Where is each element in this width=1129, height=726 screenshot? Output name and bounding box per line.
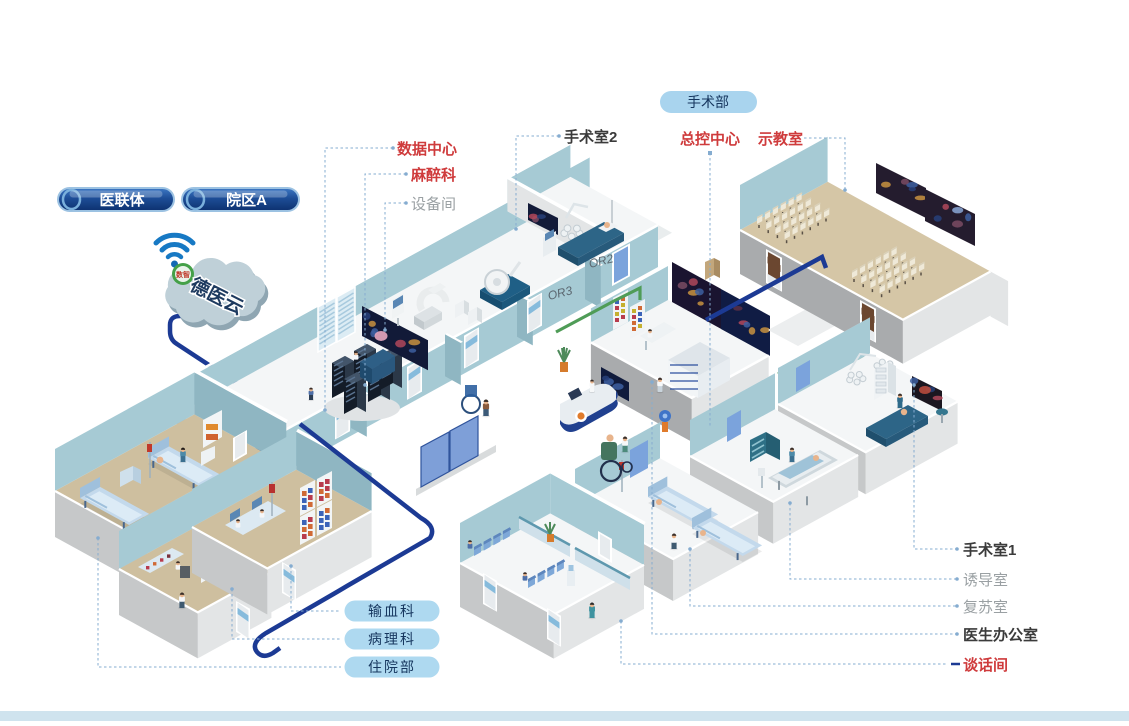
svg-text:住院部: 住院部 [368,659,416,675]
svg-text:设备间: 设备间 [411,196,456,213]
svg-text:病理科: 病理科 [368,631,416,647]
svg-text:手术室2: 手术室2 [564,128,617,146]
svg-text:诱导室: 诱导室 [963,572,1008,589]
svg-text:院区A: 院区A [226,191,267,209]
svg-text:手术室1: 手术室1 [963,541,1016,559]
svg-text:医联体: 医联体 [99,191,145,209]
svg-text:复苏室: 复苏室 [963,598,1008,616]
svg-text:麻醉科: 麻醉科 [410,166,456,184]
svg-text:医生办公室: 医生办公室 [963,626,1038,644]
svg-text:输血科: 输血科 [368,603,416,619]
svg-text:数智: 数智 [176,270,190,279]
svg-text:数据中心: 数据中心 [397,140,457,158]
svg-text:示教室: 示教室 [758,130,803,148]
svg-text:谈话间: 谈话间 [963,656,1008,674]
svg-text:总控中心: 总控中心 [680,130,740,148]
svg-text:手术部: 手术部 [687,94,729,110]
